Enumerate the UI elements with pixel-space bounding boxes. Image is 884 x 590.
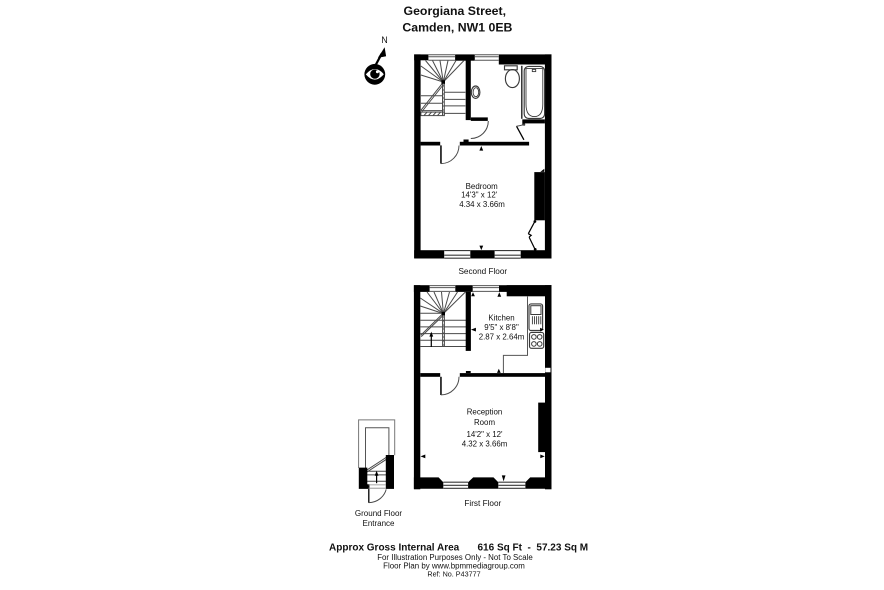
svg-text:First Floor: First Floor [464,499,501,508]
svg-text:616 Sq Ft - 57.23 Sq M: 616 Sq Ft - 57.23 Sq M [478,542,589,553]
svg-text:Camden, NW1 0EB: Camden, NW1 0EB [402,20,512,34]
svg-text:9'5" x 8'8": 9'5" x 8'8" [484,323,519,332]
svg-text:Ref: No. P43777: Ref: No. P43777 [427,569,480,578]
svg-text:N: N [381,35,387,45]
svg-text:4.34 x 3.66m: 4.34 x 3.66m [459,200,505,209]
svg-text:14'2" x 12': 14'2" x 12' [466,430,503,439]
svg-text:14'3" x 12': 14'3" x 12' [461,191,498,200]
svg-text:2.87 x 2.64m: 2.87 x 2.64m [479,332,525,341]
svg-text:Approx Gross Internal Area: Approx Gross Internal Area [329,542,460,553]
svg-text:Entrance: Entrance [362,519,395,528]
svg-text:Georgiana Street,: Georgiana Street, [404,4,507,18]
svg-text:4.32 x 3.66m: 4.32 x 3.66m [462,439,508,448]
svg-text:Kitchen: Kitchen [488,313,514,322]
svg-text:Ground Floor: Ground Floor [355,509,402,518]
svg-text:Bedroom: Bedroom [466,182,498,191]
svg-text:Room: Room [474,418,495,427]
svg-text:Reception: Reception [467,408,503,417]
svg-text:Second Floor: Second Floor [458,267,507,276]
